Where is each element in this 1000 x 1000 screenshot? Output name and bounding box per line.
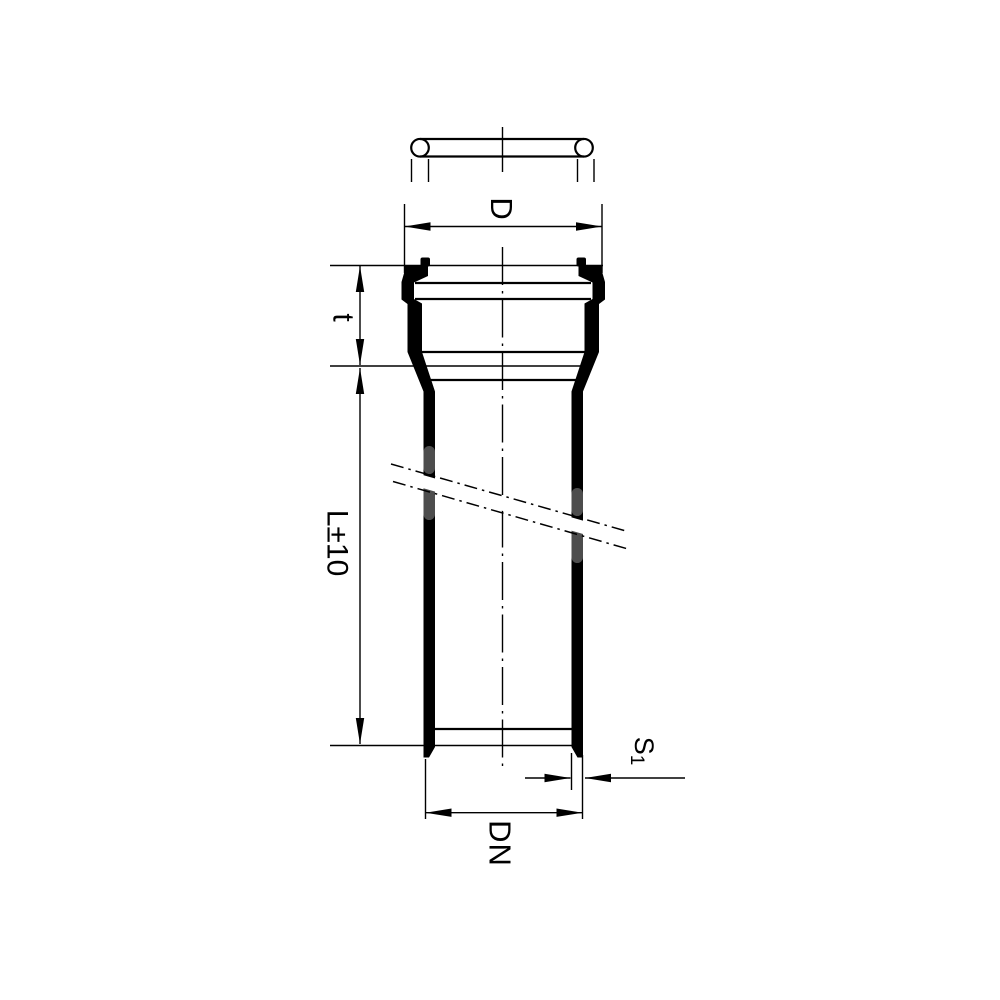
oring-right-section: [575, 139, 593, 157]
dimension-DN: DN: [426, 809, 583, 867]
drawing-canvas: D t L±10 DN S1: [0, 0, 1000, 1000]
arrowhead-up: [356, 266, 364, 292]
break-lines: [385, 446, 632, 563]
label-t: t: [327, 313, 360, 322]
arrowhead-right: [576, 222, 602, 230]
label-S1: S1: [627, 737, 660, 766]
arrowhead-right: [545, 774, 571, 782]
label-DN: DN: [483, 820, 518, 867]
arrowhead-down: [356, 718, 364, 744]
arrowhead-up: [356, 368, 364, 394]
arrowhead-left: [426, 809, 452, 817]
socket-lip-left: [421, 258, 431, 267]
oring-left-section: [411, 139, 429, 157]
socket-lip-right: [577, 258, 587, 267]
arrowhead-left: [405, 222, 431, 230]
break-gap: [385, 464, 632, 548]
pipe-section-drawing: D t L±10 DN S1: [0, 0, 1000, 1000]
dimension-L: L±10: [321, 368, 365, 744]
dimension-S1: S1: [525, 737, 685, 782]
arrowhead-left: [585, 774, 611, 782]
arrowhead-down: [356, 339, 364, 365]
dimension-t: t: [327, 266, 365, 365]
label-D: D: [484, 197, 519, 219]
dimension-D: D: [405, 197, 603, 230]
label-L: L±10: [321, 510, 354, 577]
arrowhead-right: [557, 809, 583, 817]
extension-lines: [330, 127, 603, 819]
